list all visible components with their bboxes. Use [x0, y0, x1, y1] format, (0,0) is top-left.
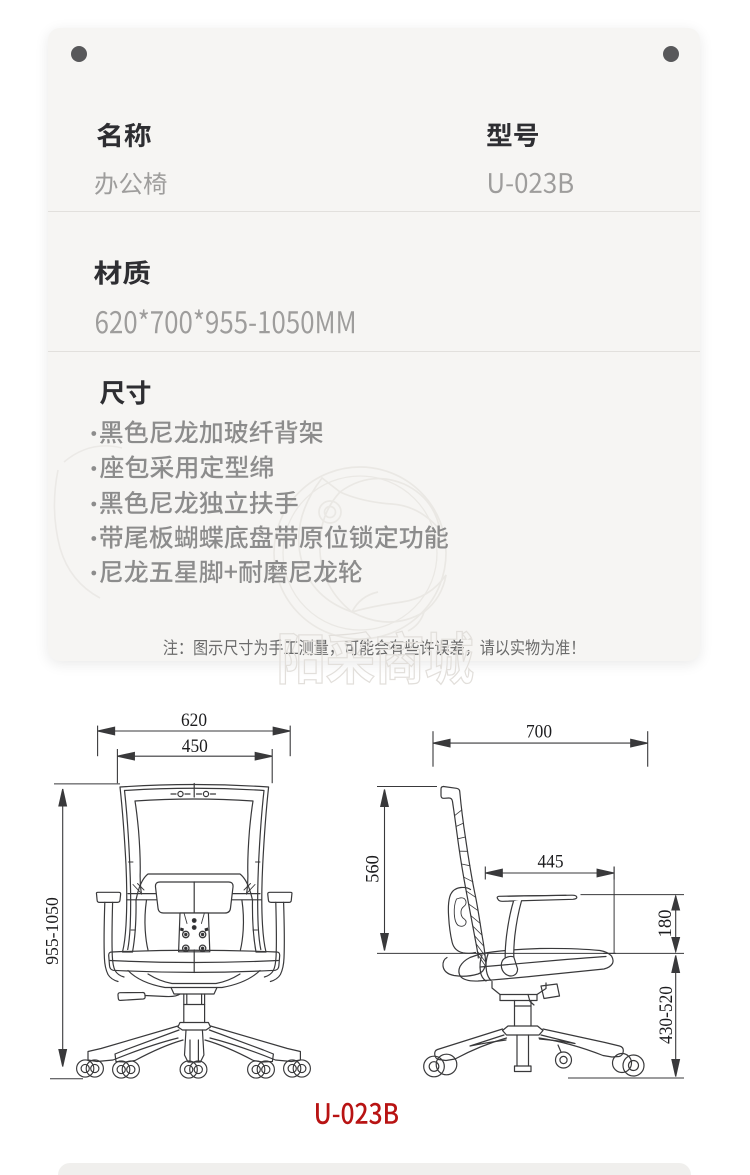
svg-text:430-520: 430-520 [656, 986, 677, 1044]
svg-text:445: 445 [538, 852, 564, 873]
svg-text:180: 180 [655, 910, 676, 938]
svg-text:450: 450 [182, 736, 208, 757]
svg-text:620: 620 [181, 710, 207, 731]
svg-text:560: 560 [363, 855, 384, 883]
svg-text:955-1050: 955-1050 [42, 897, 62, 965]
svg-text:700: 700 [526, 722, 552, 743]
